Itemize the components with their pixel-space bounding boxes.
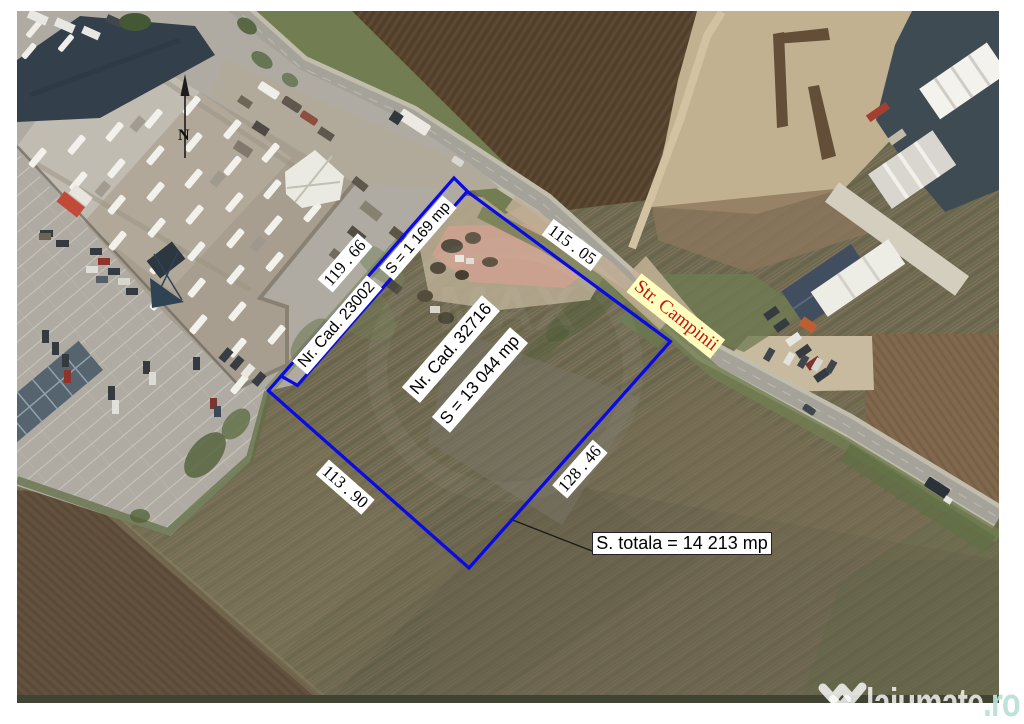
svg-text:N: N bbox=[178, 127, 190, 144]
